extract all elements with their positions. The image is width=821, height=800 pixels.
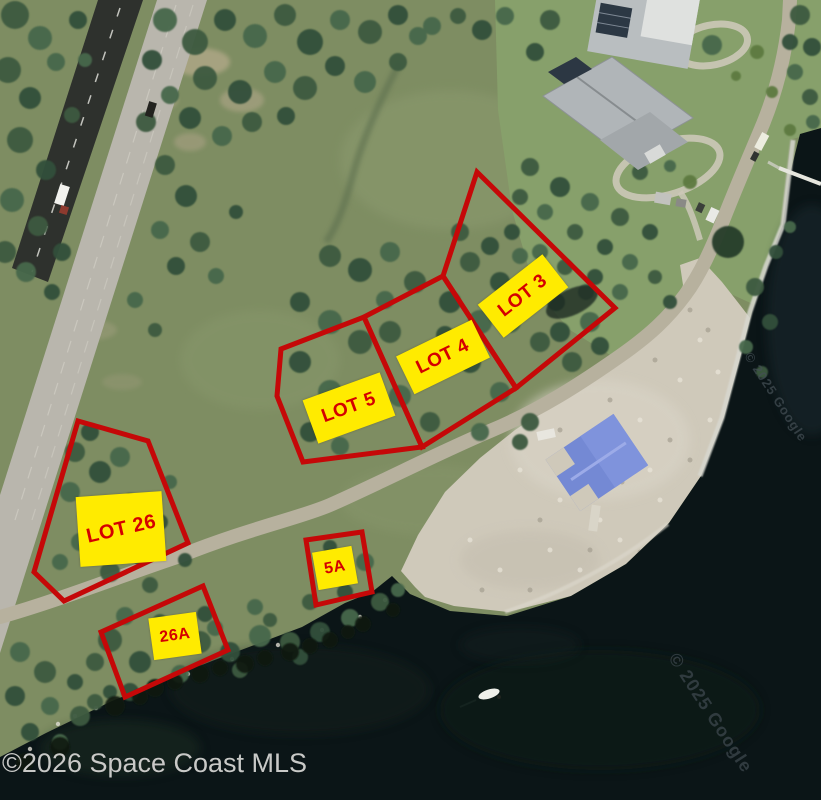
lot-5-label-text: LOT 5 [319,388,379,428]
lot-26a-label-text: 26A [158,625,191,647]
lot-5a-label-text: 5A [323,557,347,578]
mls-listing-photo: © 2025 Google © 2025 Google LOT 26 LOT 5… [0,0,821,800]
lot-26a-label: 26A [148,612,201,660]
lot-26-label-text: LOT 26 [84,510,158,548]
lot-26-label: LOT 26 [76,491,167,567]
mls-watermark: ©2026 Space Coast MLS [2,748,307,779]
lot-5a-label: 5A [312,546,358,590]
satellite-imagery: © 2025 Google © 2025 Google [0,0,821,800]
